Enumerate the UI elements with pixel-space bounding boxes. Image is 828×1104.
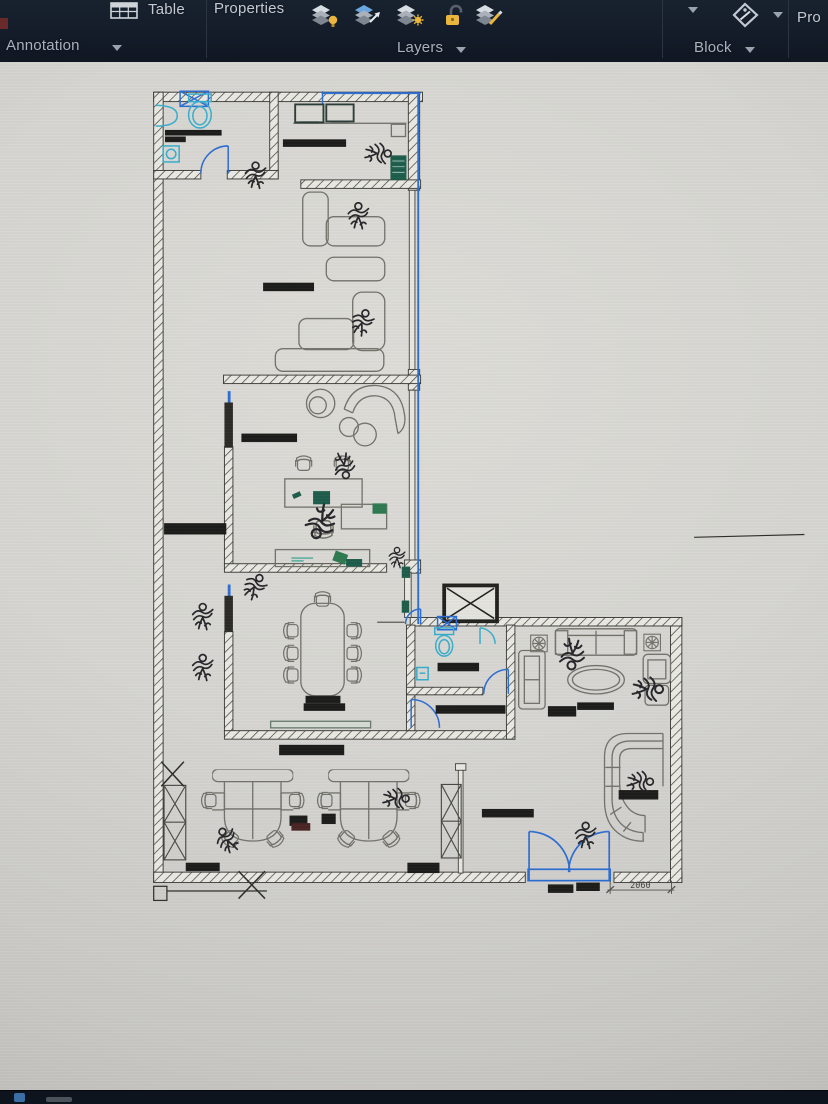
chair: [347, 623, 361, 639]
panel-layers[interactable]: Layers: [397, 39, 443, 56]
panel-annotation[interactable]: Annotation: [6, 37, 80, 54]
green-item: [373, 503, 387, 513]
chair: [380, 828, 402, 849]
chair: [290, 792, 304, 808]
status-bar: [0, 1090, 828, 1104]
table-button[interactable]: Table: [148, 1, 185, 18]
monitor: [295, 104, 323, 122]
chair: [347, 667, 361, 683]
thin-partitions: [405, 190, 466, 873]
window-mullion-panels: [164, 622, 461, 860]
plant-blob: [306, 389, 334, 417]
glazing-and-doors: [180, 91, 610, 880]
wall-device: [391, 124, 405, 136]
round-table: [339, 418, 358, 437]
panel-block[interactable]: Block: [694, 39, 732, 56]
panel-properties-partial[interactable]: Pro: [797, 9, 821, 26]
toilet: [435, 628, 454, 656]
sideboard: [271, 721, 371, 728]
chair: [315, 592, 331, 606]
plant-box: [644, 634, 661, 651]
corridor-item: [402, 601, 410, 613]
layer-thaw-icon[interactable]: [395, 2, 425, 33]
properties-button[interactable]: Properties: [214, 0, 284, 17]
chair: [284, 623, 298, 639]
plant-box: [531, 635, 548, 652]
autocad-window: Table Properties: [0, 0, 828, 1104]
corner-marker: [154, 886, 167, 900]
chair: [284, 645, 298, 661]
coffee-table: [568, 666, 625, 694]
armchair: [643, 654, 670, 705]
chair: [284, 667, 298, 683]
chair: [347, 645, 361, 661]
dropdown-caret-icon[interactable]: [773, 12, 783, 18]
conference-table: [301, 603, 344, 695]
layer-unlock-icon[interactable]: [440, 4, 468, 33]
layer-on-icon[interactable]: [310, 2, 340, 33]
tiny-label-marks: [291, 558, 313, 561]
modular-desks: [275, 192, 384, 371]
panel-divider: [206, 0, 207, 58]
chair: [318, 792, 332, 808]
curved-sofa: [344, 385, 405, 433]
drawing-canvas[interactable]: 2060: [0, 62, 828, 1090]
x-mark: [161, 762, 184, 787]
desk-equipment: [313, 491, 330, 504]
layer-match-icon[interactable]: [353, 2, 383, 33]
wall-fixture: [417, 667, 428, 679]
workstation-cluster: [211, 769, 294, 841]
entrance-double-door: [528, 832, 610, 881]
dropdown-caret-icon[interactable]: [688, 7, 698, 13]
floor-drain: [163, 146, 179, 162]
ribbon-toolbar: Table Properties: [0, 0, 828, 62]
layer-edit-icon[interactable]: [474, 2, 504, 33]
chair: [336, 828, 358, 849]
urinal: [480, 628, 495, 644]
stray-line: [694, 535, 804, 538]
dropdown-caret-icon[interactable]: [745, 47, 755, 53]
green-item: [332, 550, 348, 564]
status-blob: [46, 1097, 72, 1102]
table-icon[interactable]: [110, 2, 138, 25]
people-figures: [193, 143, 663, 856]
panel-divider: [662, 0, 663, 58]
corridor-item: [402, 567, 410, 578]
sofa: [555, 629, 636, 655]
workstation-cluster: [327, 769, 410, 841]
keyboard: [346, 559, 362, 567]
partial-icon: [0, 18, 8, 29]
panel-divider: [788, 0, 789, 58]
dimension-text: 2060: [630, 880, 650, 890]
floorplan: 2060: [0, 62, 828, 1090]
dropdown-caret-icon[interactable]: [112, 45, 122, 51]
dropdown-caret-icon[interactable]: [456, 47, 466, 53]
printer: [390, 155, 406, 180]
round-table: [354, 423, 377, 446]
command-line-icon[interactable]: [14, 1093, 25, 1102]
monitor: [326, 104, 353, 121]
chair: [202, 792, 216, 808]
chair: [296, 456, 312, 470]
chair: [264, 828, 286, 849]
block-edit-attribute-icon[interactable]: [729, 1, 761, 34]
sofa: [519, 651, 545, 709]
